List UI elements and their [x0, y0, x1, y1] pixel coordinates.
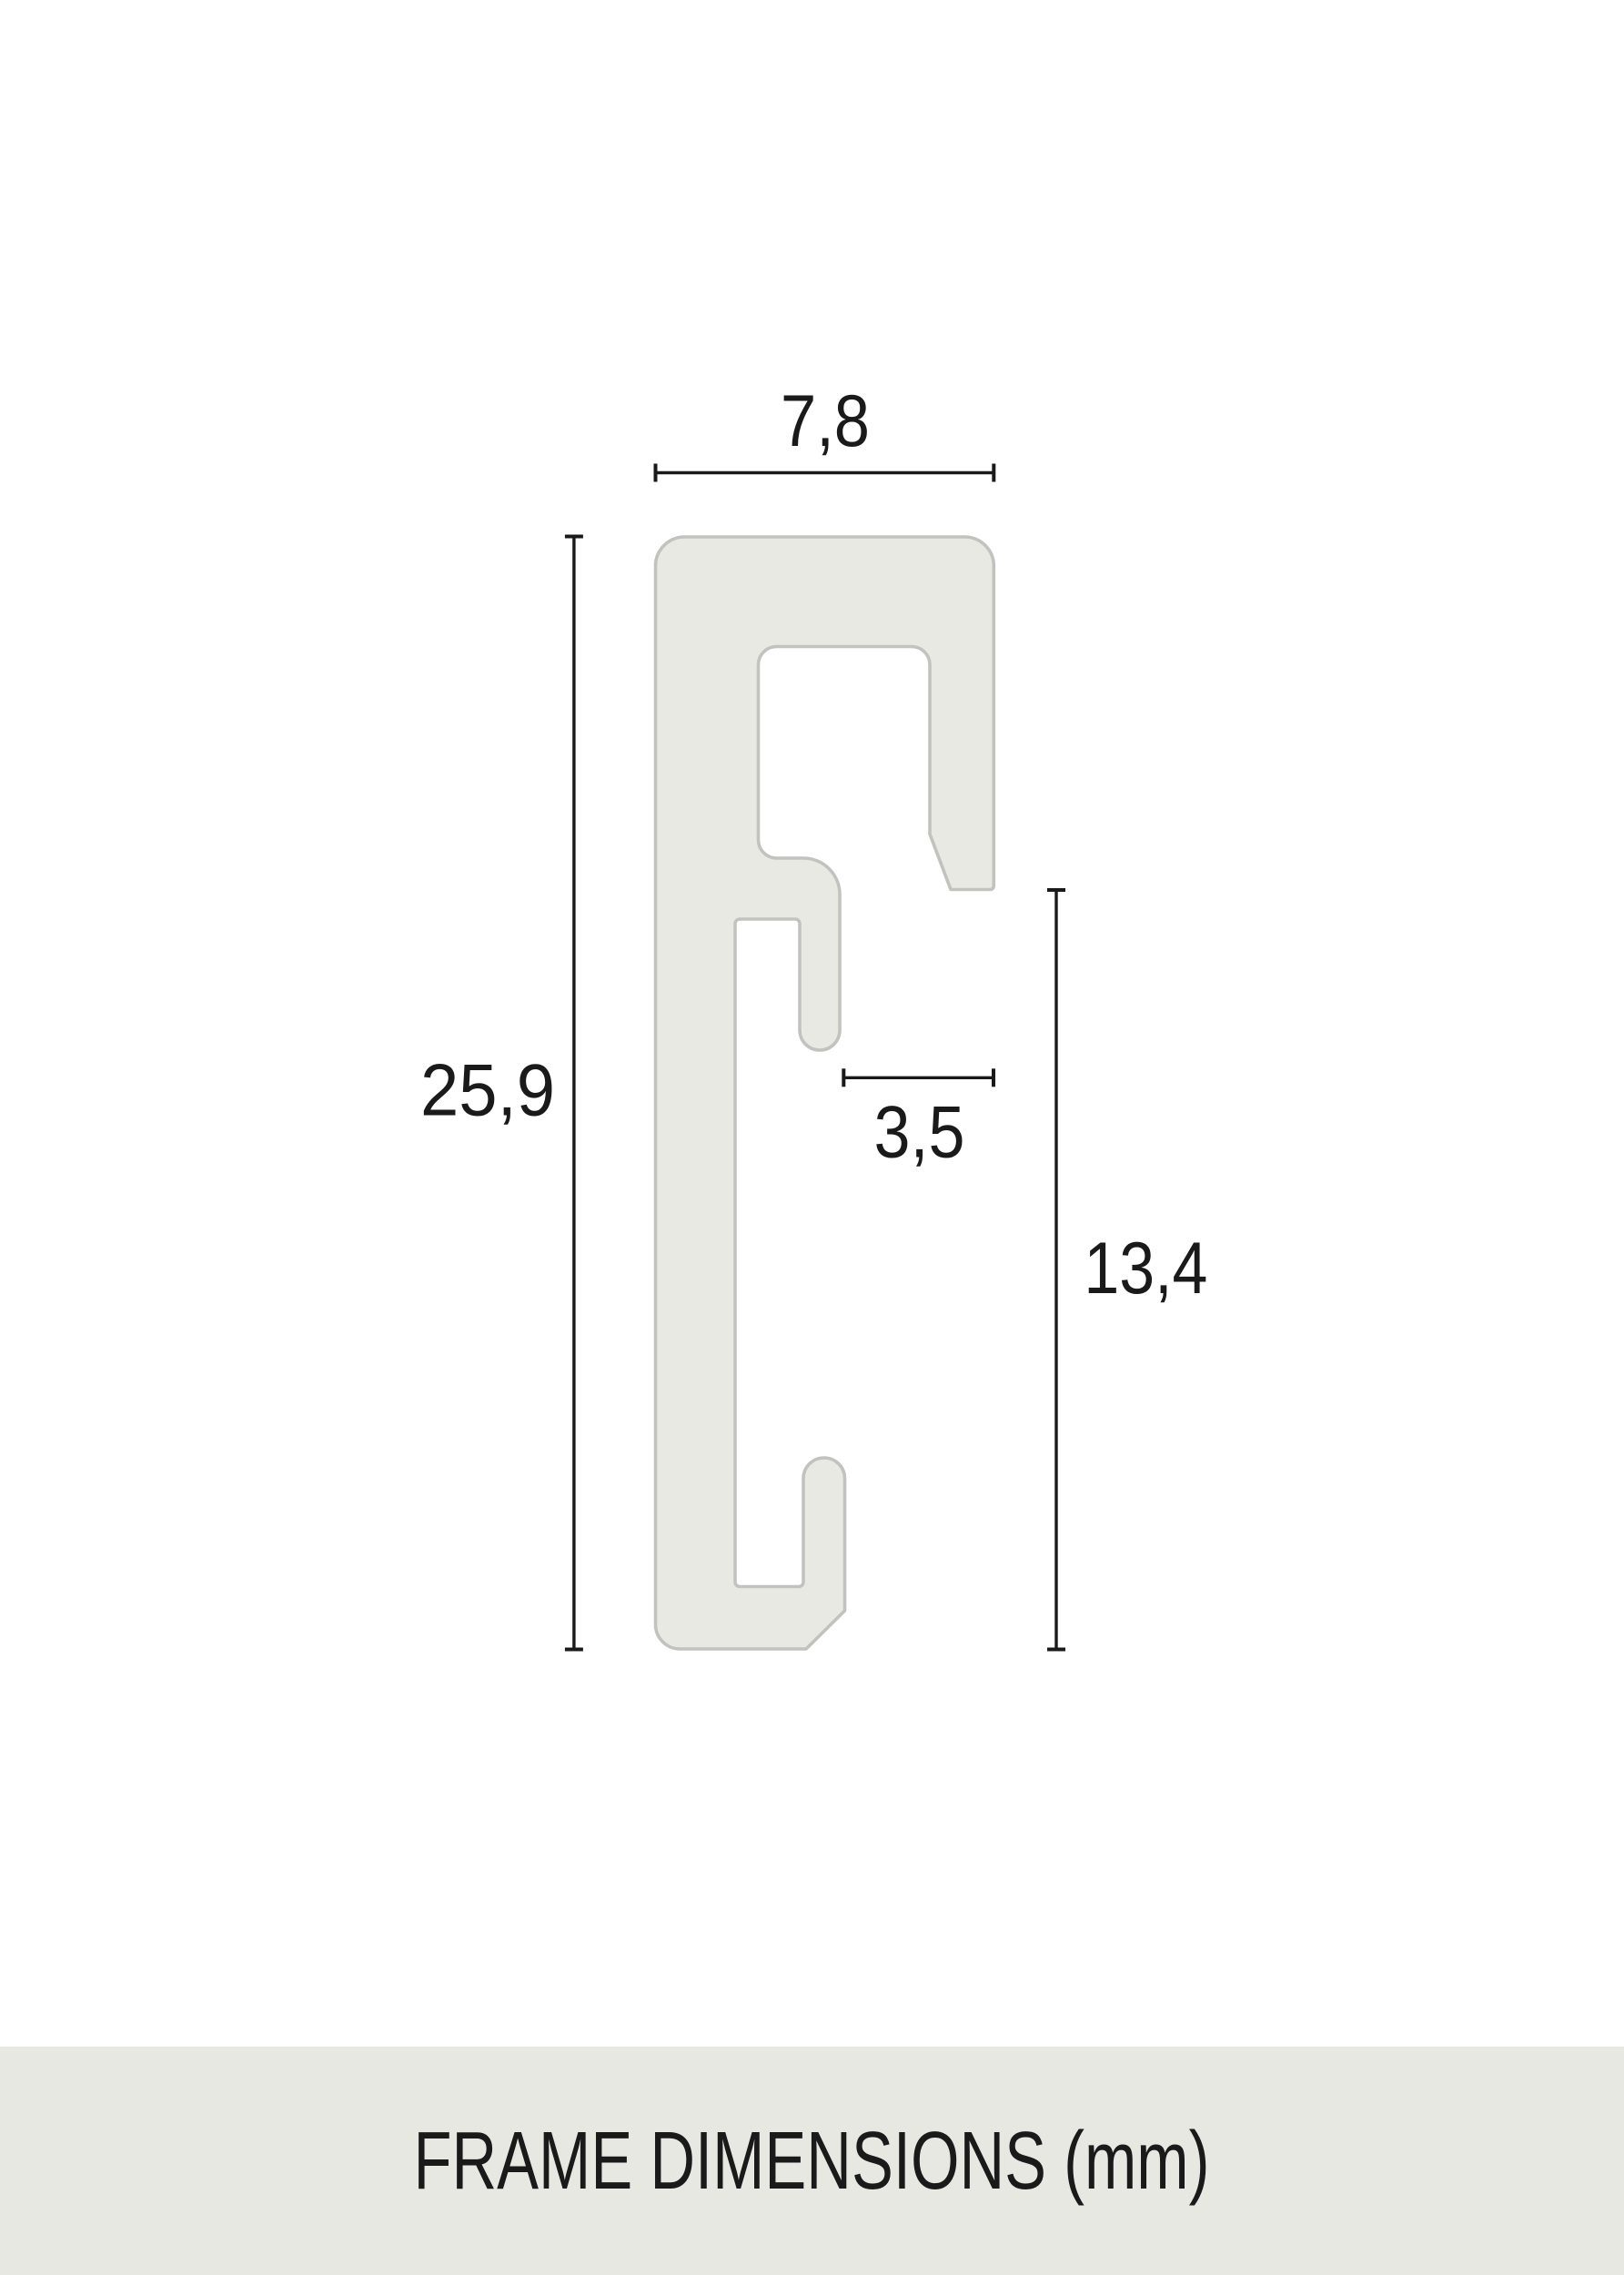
- svg-text:7,8: 7,8: [781, 380, 870, 462]
- svg-text:FRAME DIMENSIONS (mm): FRAME DIMENSIONS (mm): [414, 2116, 1210, 2207]
- svg-text:13,4: 13,4: [1084, 1228, 1207, 1309]
- svg-text:3,5: 3,5: [874, 1092, 965, 1174]
- svg-text:25,9: 25,9: [420, 1050, 555, 1132]
